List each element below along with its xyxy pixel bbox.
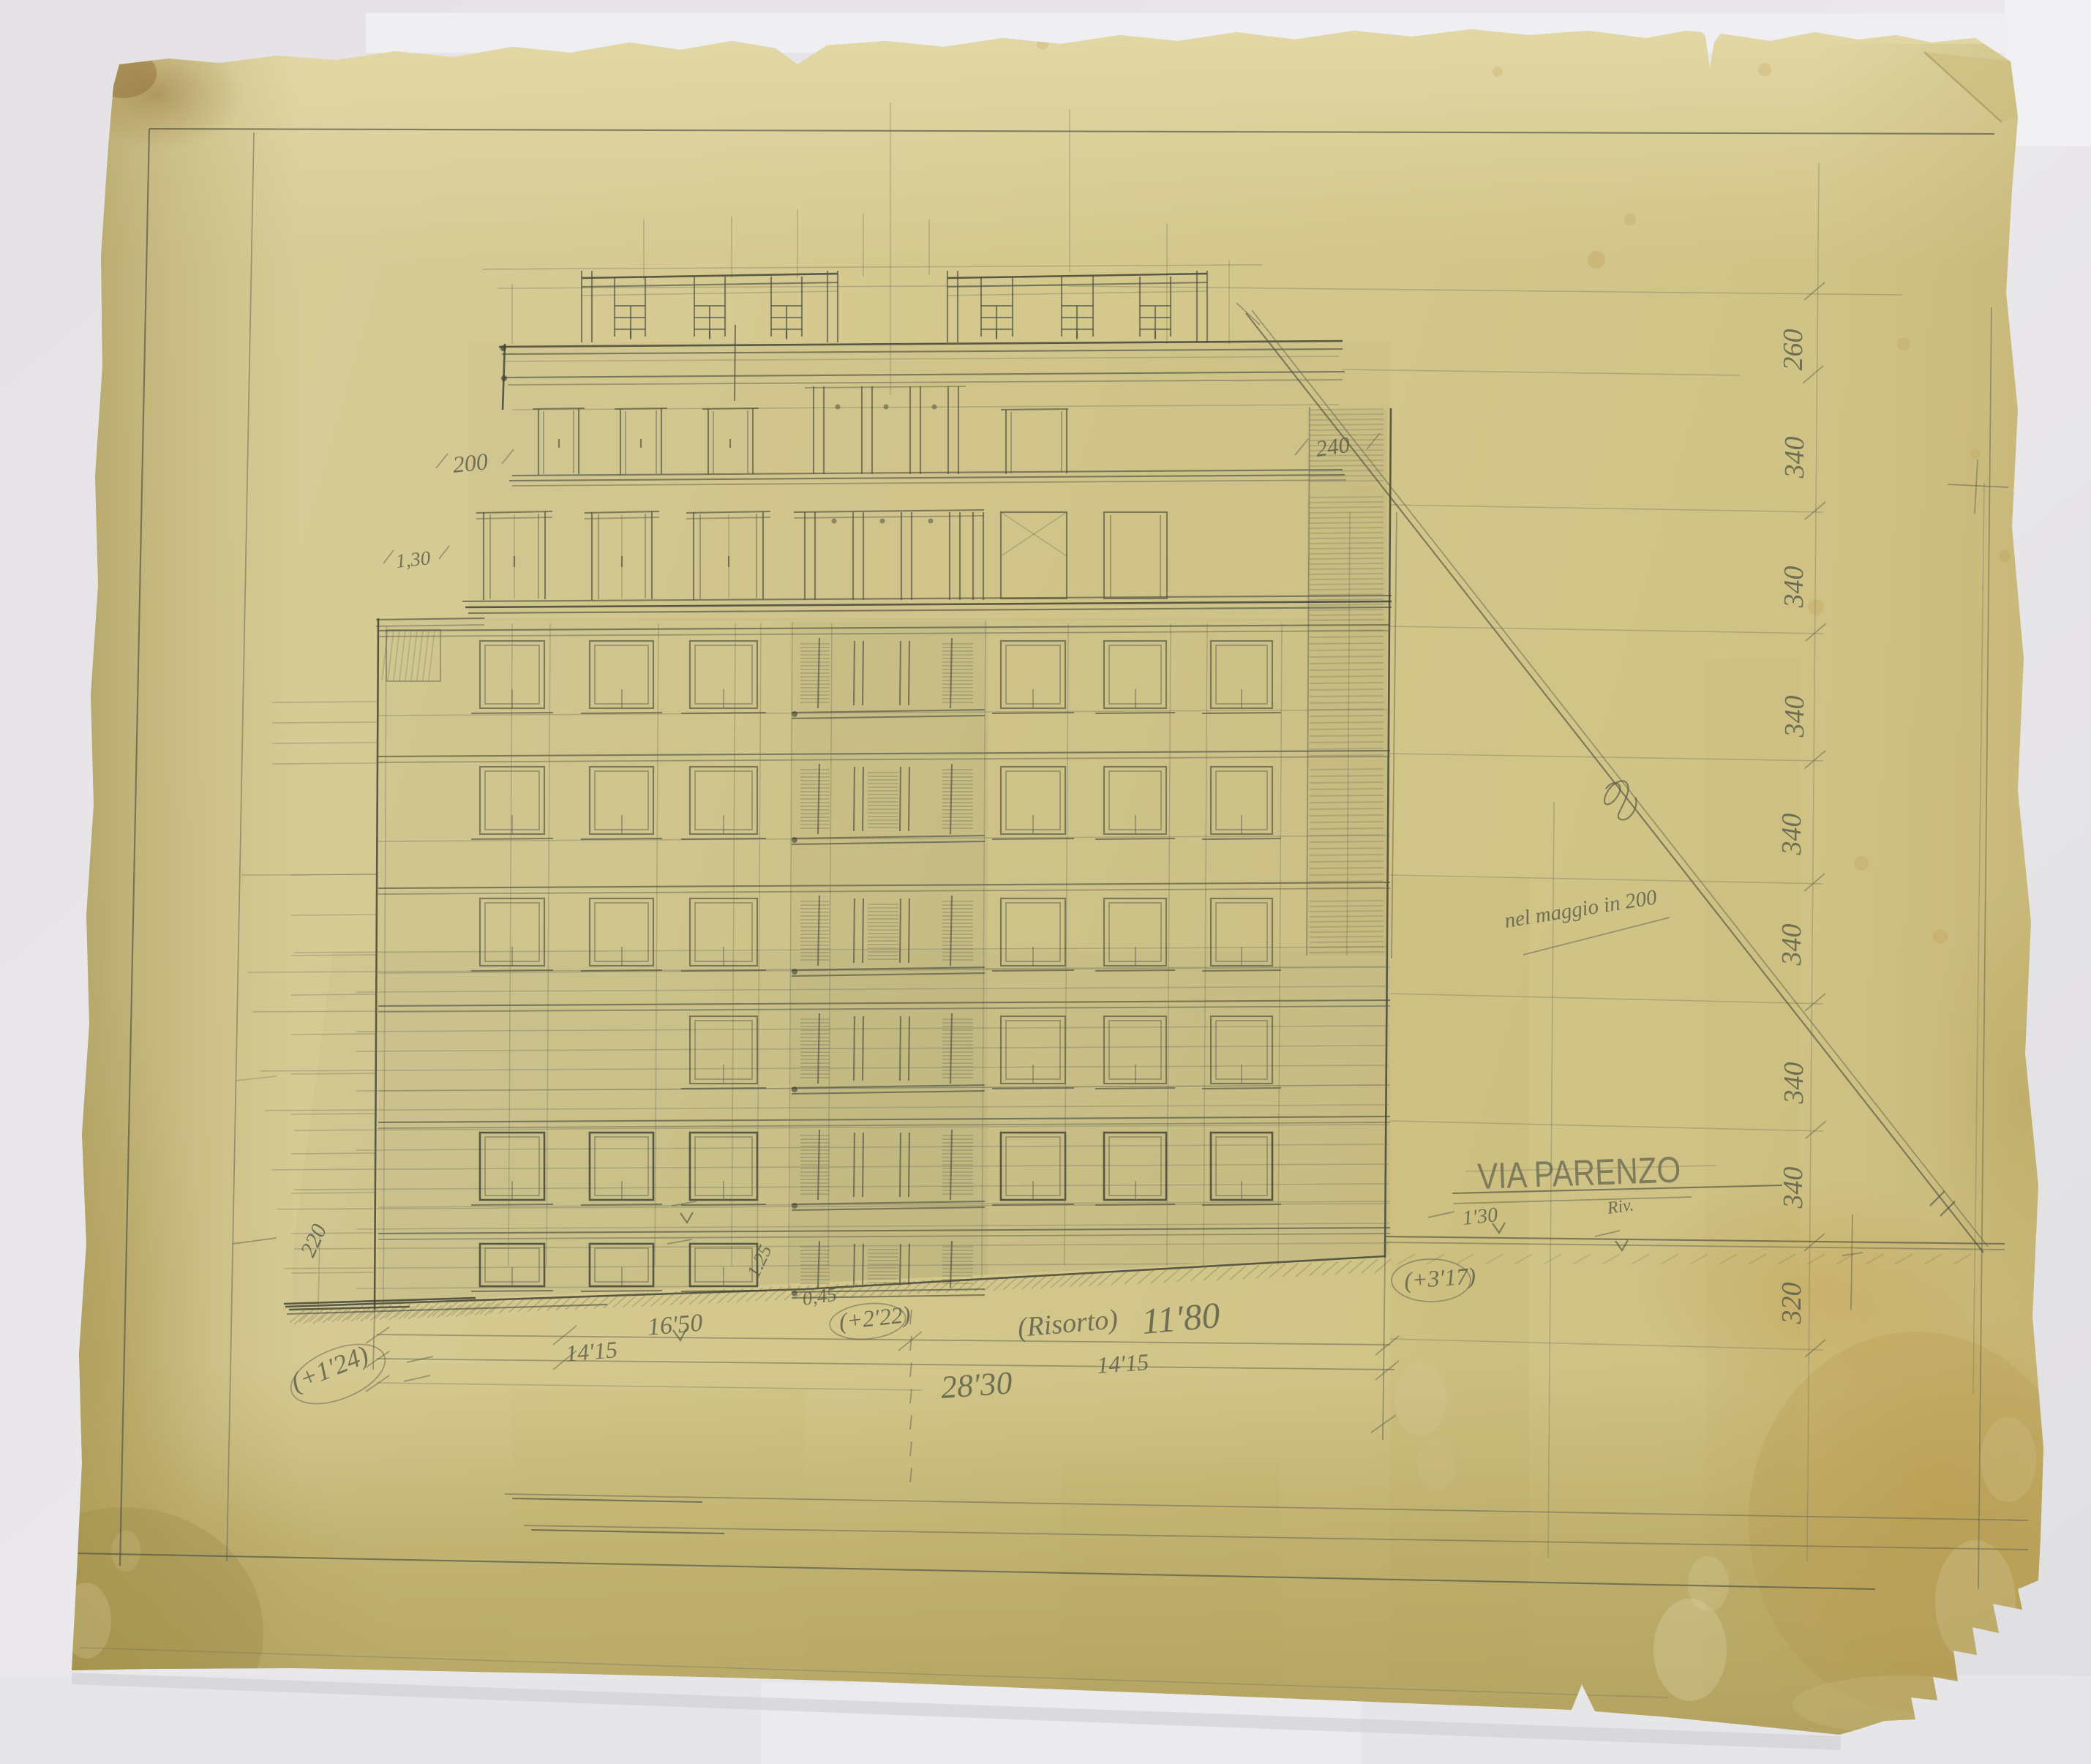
svg-text:340: 340 xyxy=(1779,696,1810,738)
svg-text:260: 260 xyxy=(1778,329,1809,371)
svg-text:340: 340 xyxy=(1779,1062,1809,1105)
svg-text:1′30: 1′30 xyxy=(1461,1204,1498,1230)
svg-text:340: 340 xyxy=(1779,437,1810,479)
svg-text:16′50: 16′50 xyxy=(646,1310,703,1341)
svg-text:320: 320 xyxy=(1776,1283,1807,1325)
svg-text:(+3′17): (+3′17) xyxy=(1403,1262,1476,1294)
svg-text:340: 340 xyxy=(1779,566,1809,609)
svg-text:340: 340 xyxy=(1776,924,1807,967)
svg-text:11′80: 11′80 xyxy=(1140,1294,1222,1342)
svg-text:340: 340 xyxy=(1778,1167,1809,1209)
svg-text:28′30: 28′30 xyxy=(939,1365,1013,1405)
svg-text:340: 340 xyxy=(1776,814,1807,856)
svg-text:14′15: 14′15 xyxy=(564,1336,618,1367)
svg-text:240: 240 xyxy=(1314,432,1351,462)
svg-text:1,30: 1,30 xyxy=(394,547,432,572)
svg-text:200: 200 xyxy=(451,448,489,478)
svg-text:14′15: 14′15 xyxy=(1096,1348,1149,1378)
